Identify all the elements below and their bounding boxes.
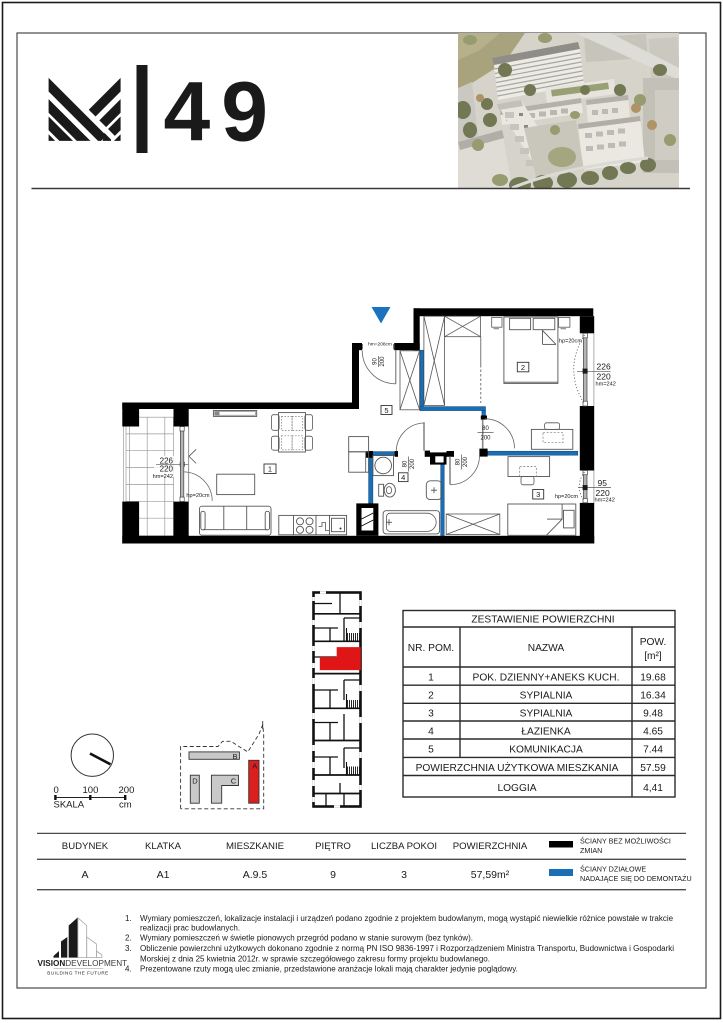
svg-text:4,41: 4,41 — [643, 783, 663, 794]
svg-text:MIESZKANIE: MIESZKANIE — [226, 841, 284, 852]
svg-text:POK. DZIENNY+ANEKS KUCH.: POK. DZIENNY+ANEKS KUCH. — [473, 673, 620, 684]
svg-text:B: B — [232, 752, 237, 761]
svg-text:LICZBA POKOI: LICZBA POKOI — [371, 841, 437, 852]
svg-text:hp=20cm: hp=20cm — [555, 494, 579, 500]
svg-text:KLATKA: KLATKA — [145, 841, 182, 852]
svg-text:Prezentowane rzuty mogą ulec z: Prezentowane rzuty mogą ulec zmianie, pr… — [140, 965, 518, 974]
svg-text:hp=20cm: hp=20cm — [186, 493, 210, 499]
svg-text:80: 80 — [455, 458, 461, 465]
svg-text:POW.: POW. — [640, 637, 667, 648]
svg-text:4: 4 — [401, 473, 405, 482]
svg-text:Wymiary pomieszczeń w świetle: Wymiary pomieszczeń w świetle pionowych … — [140, 934, 473, 943]
svg-text:C: C — [231, 777, 237, 786]
svg-text:7.44: 7.44 — [643, 745, 663, 756]
svg-text:90: 90 — [372, 358, 378, 365]
svg-text:220: 220 — [597, 372, 611, 382]
svg-text:A: A — [252, 762, 257, 771]
svg-text:Wymiary pomieszczeń, lokalizac: Wymiary pomieszczeń, lokalizacje instala… — [140, 914, 674, 923]
svg-text:3: 3 — [536, 490, 540, 499]
svg-text:NAZWA: NAZWA — [528, 643, 565, 654]
svg-text:1: 1 — [268, 465, 272, 474]
svg-text:cm: cm — [119, 800, 132, 811]
svg-text:ŚCIANY BEZ MOŻLIWOŚCI: ŚCIANY BEZ MOŻLIWOŚCI — [580, 837, 671, 846]
svg-text:4.65: 4.65 — [643, 727, 663, 738]
svg-text:0: 0 — [54, 785, 59, 796]
svg-text:4.: 4. — [125, 965, 132, 974]
svg-text:9.48: 9.48 — [643, 709, 663, 720]
svg-text:200: 200 — [410, 458, 416, 469]
svg-text:49: 49 — [164, 65, 279, 159]
svg-text:80: 80 — [402, 460, 408, 467]
svg-text:80: 80 — [482, 426, 489, 432]
svg-text:LOGGIA: LOGGIA — [497, 783, 536, 794]
svg-text:5: 5 — [428, 745, 434, 756]
svg-text:1.: 1. — [125, 914, 132, 923]
svg-text:3: 3 — [428, 709, 434, 720]
svg-text:VISIONDEVELOPMENT: VISIONDEVELOPMENT — [38, 959, 128, 968]
svg-text:ŚCIANY DZIAŁOWE: ŚCIANY DZIAŁOWE — [580, 865, 646, 874]
svg-text:A1: A1 — [157, 869, 170, 881]
svg-text:KOMUNIKACJA: KOMUNIKACJA — [509, 745, 583, 756]
svg-text:[m²]: [m²] — [644, 651, 662, 662]
svg-text:3.: 3. — [125, 944, 132, 953]
svg-text:realizacji prac budowlanych.: realizacji prac budowlanych. — [140, 924, 240, 933]
svg-text:16.34: 16.34 — [640, 691, 666, 702]
svg-text:PIĘTRO: PIĘTRO — [315, 841, 351, 852]
svg-text:220: 220 — [596, 488, 610, 498]
svg-text:200: 200 — [480, 435, 491, 441]
svg-text:NR. POM.: NR. POM. — [408, 643, 454, 654]
svg-text:POWIERZCHNIA: POWIERZCHNIA — [453, 841, 528, 852]
svg-text:ZMIAN: ZMIAN — [580, 846, 602, 855]
svg-text:3: 3 — [401, 869, 407, 881]
svg-text:100: 100 — [83, 785, 99, 796]
svg-text:SYPIALNIA: SYPIALNIA — [520, 691, 573, 702]
svg-text:BUDYNEK: BUDYNEK — [62, 841, 109, 852]
svg-text:hm=208cm: hm=208cm — [368, 342, 392, 348]
svg-text:ŁAZIENKA: ŁAZIENKA — [521, 727, 570, 738]
svg-text:hm=242: hm=242 — [153, 474, 173, 480]
svg-text:4: 4 — [428, 727, 434, 738]
svg-text:NADAJĄCE SIĘ DO DEMONTAŻU: NADAJĄCE SIĘ DO DEMONTAŻU — [580, 874, 692, 883]
svg-text:19.68: 19.68 — [640, 673, 666, 684]
svg-text:1: 1 — [428, 673, 434, 684]
svg-text:200: 200 — [463, 456, 469, 467]
svg-text:A.9.5: A.9.5 — [243, 869, 268, 881]
svg-text:ZESTAWIENIE POWIERZCHNI: ZESTAWIENIE POWIERZCHNI — [471, 615, 614, 626]
svg-text:95: 95 — [598, 478, 608, 488]
svg-text:220: 220 — [160, 465, 174, 474]
svg-text:2.: 2. — [125, 934, 132, 943]
svg-text:2: 2 — [428, 691, 434, 702]
svg-text:D: D — [192, 777, 198, 786]
svg-text:Morskiej z dnia 25 kwietnia 20: Morskiej z dnia 25 kwietnia 2012r. w spr… — [140, 955, 490, 964]
svg-text:hm=242: hm=242 — [595, 498, 615, 504]
svg-text:SKALA: SKALA — [54, 800, 85, 811]
svg-text:Obliczenie powierzchni użytkow: Obliczenie powierzchni użytkowych dokona… — [140, 944, 674, 953]
svg-text:A: A — [81, 869, 88, 881]
svg-text:57,59m²: 57,59m² — [471, 869, 510, 881]
svg-text:226: 226 — [597, 362, 611, 372]
svg-text:POWIERZCHNIA UŻYTKOWA MIESZKAN: POWIERZCHNIA UŻYTKOWA MIESZKANIA — [416, 761, 619, 774]
svg-text:2: 2 — [521, 363, 525, 372]
svg-text:9: 9 — [330, 869, 336, 881]
svg-text:hm=242: hm=242 — [596, 381, 616, 387]
svg-text:hp=20cm: hp=20cm — [559, 339, 583, 345]
svg-text:57.59: 57.59 — [640, 763, 666, 774]
svg-text:200: 200 — [380, 356, 386, 367]
svg-text:SYPIALNIA: SYPIALNIA — [520, 709, 573, 720]
svg-text:5: 5 — [384, 406, 388, 415]
svg-text:BUILDING THE FUTURE: BUILDING THE FUTURE — [47, 970, 108, 975]
svg-text:200: 200 — [119, 785, 135, 796]
